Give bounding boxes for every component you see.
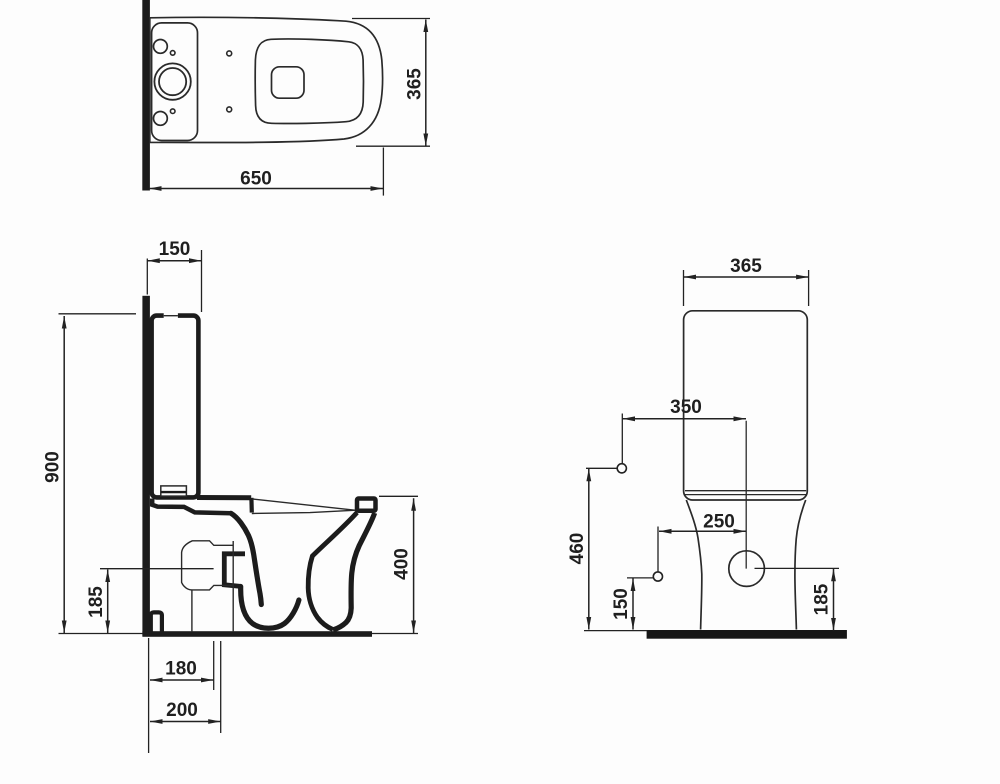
svg-text:180: 180 [165,659,197,680]
svg-text:365: 365 [730,256,762,277]
svg-text:900: 900 [43,451,64,483]
svg-text:400: 400 [392,548,413,580]
svg-text:365: 365 [405,68,426,100]
svg-text:185: 185 [86,586,107,618]
svg-text:250: 250 [703,512,735,533]
svg-text:460: 460 [567,533,588,565]
svg-text:350: 350 [670,397,702,418]
svg-text:650: 650 [240,169,272,190]
svg-text:150: 150 [611,588,632,620]
svg-text:150: 150 [159,239,191,260]
svg-text:200: 200 [166,700,198,721]
svg-text:185: 185 [812,583,833,615]
